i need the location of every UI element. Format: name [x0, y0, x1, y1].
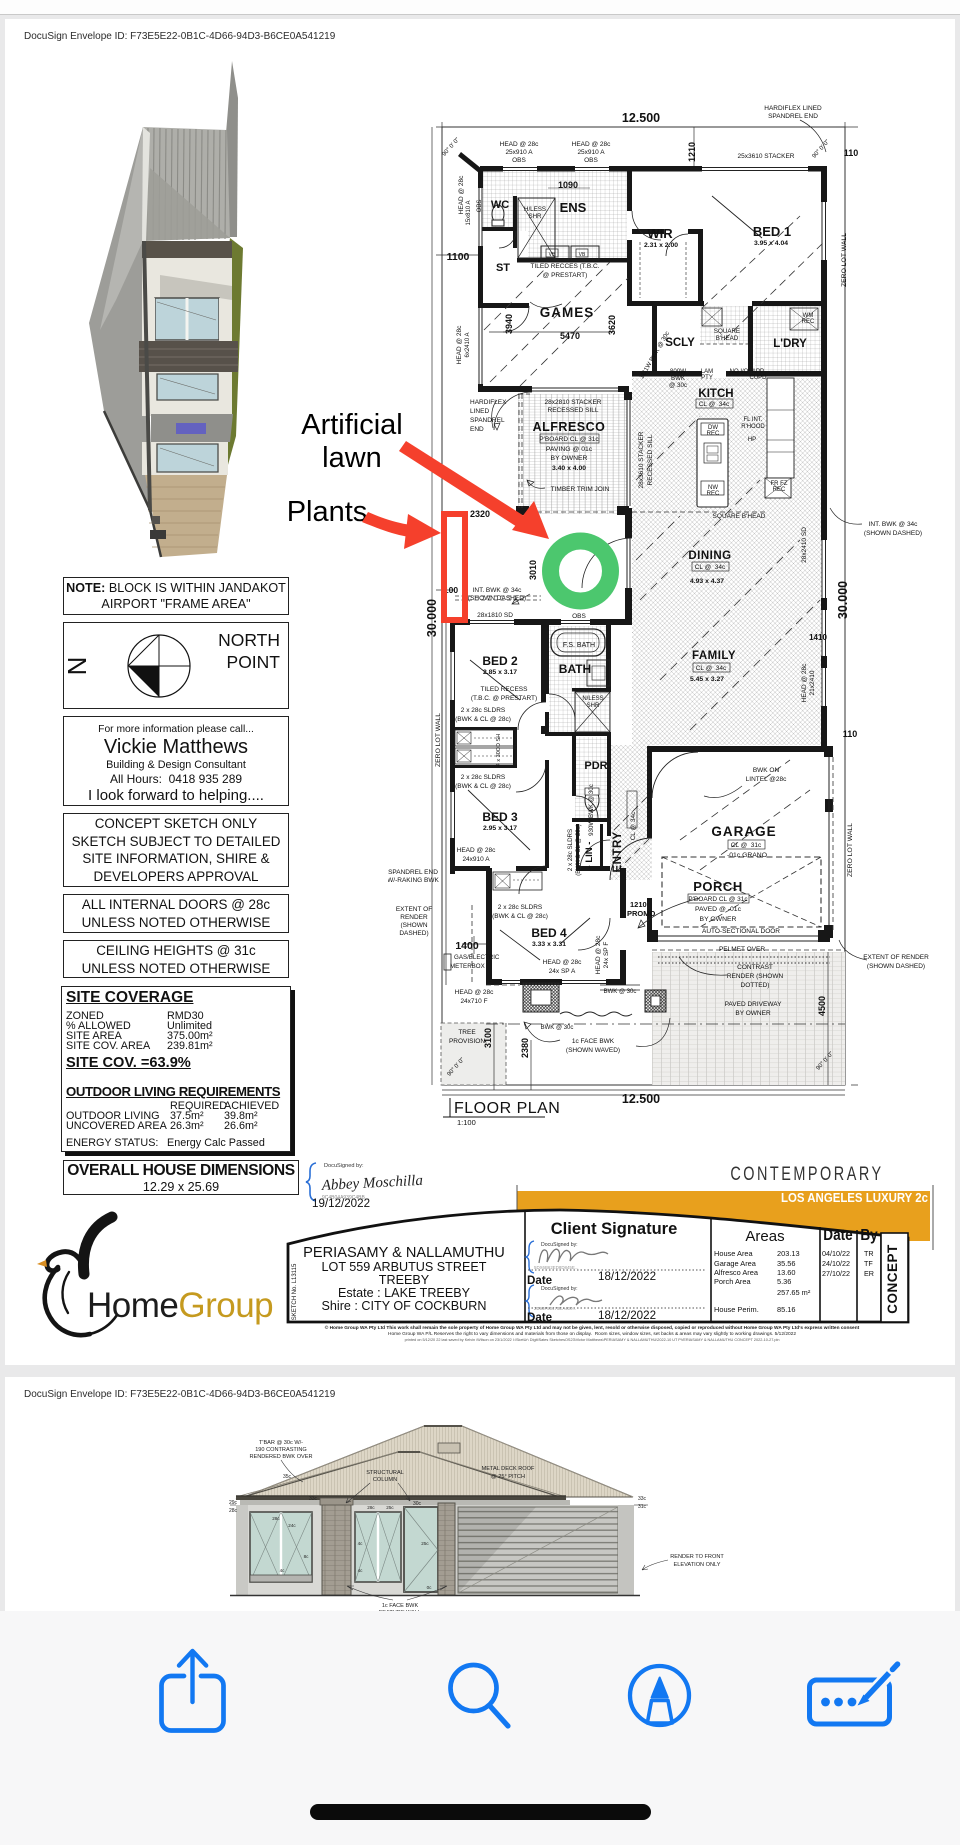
svg-text:SPANDREL END: SPANDREL END	[768, 113, 818, 120]
svg-text:PROMO: PROMO	[627, 909, 656, 918]
svg-text:Garage Area: Garage Area	[714, 1259, 757, 1268]
svg-text:CONTEMPORARY: CONTEMPORARY	[730, 1162, 883, 1185]
svg-text:HomeGroup: HomeGroup	[87, 1286, 273, 1325]
svg-text:Plants: Plants	[287, 496, 368, 528]
svg-text:DocuSigned by:: DocuSigned by:	[324, 1163, 364, 1169]
svg-text:EXTENT OF: EXTENT OF	[396, 906, 432, 913]
svg-text:DINING: DINING	[688, 550, 731, 562]
svg-text:3620: 3620	[607, 315, 617, 335]
svg-text:2380: 2380	[520, 1038, 530, 1058]
svg-text:BED 4: BED 4	[531, 926, 567, 940]
svg-text:Porch Area: Porch Area	[714, 1277, 751, 1286]
svg-text:REC: REC	[773, 487, 786, 493]
svg-text:TF: TF	[864, 1259, 873, 1268]
svg-text:B'HEAD: B'HEAD	[716, 335, 739, 342]
svg-text:BED 1: BED 1	[753, 224, 791, 239]
svg-text:HEAD @ 28c: HEAD @ 28c	[595, 935, 602, 974]
svg-text:WIR: WIR	[647, 226, 673, 241]
svg-text:PAVED @ -01c: PAVED @ -01c	[695, 906, 742, 913]
svg-text:(BWK & CL @ 28c): (BWK & CL @ 28c)	[576, 824, 582, 876]
svg-text:24x SP F: 24x SP F	[603, 942, 610, 969]
svg-text:CL @ 34c: CL @ 34c	[699, 401, 730, 408]
svg-text:HP: HP	[748, 437, 756, 443]
svg-text:24/10/22: 24/10/22	[822, 1259, 850, 1268]
svg-text:SPANDREL END: SPANDREL END	[388, 869, 438, 876]
svg-text:Artificial: Artificial	[301, 409, 403, 441]
svg-text:35.56: 35.56	[777, 1259, 796, 1268]
svg-text:CL @ 34c: CL @ 34c	[630, 811, 637, 841]
svg-text:HEAD @ 28c: HEAD @ 28c	[456, 325, 463, 364]
svg-text:(SHOWN DASHED): (SHOWN DASHED)	[864, 530, 922, 537]
svg-text:HEAD @ 28c: HEAD @ 28c	[500, 141, 539, 148]
svg-text:VB: VB	[549, 252, 556, 258]
svg-text:90° 0' 0": 90° 0' 0"	[812, 139, 831, 160]
svg-text:Alfresco Area: Alfresco Area	[714, 1268, 759, 1277]
svg-text:ENTRY: ENTRY	[612, 831, 624, 872]
svg-text:PAVED DRIVEWAY: PAVED DRIVEWAY	[725, 1001, 782, 1008]
svg-text:CUPD: CUPD	[749, 375, 767, 381]
svg-text:Date: Date	[823, 1227, 852, 1244]
svg-text:R'HOOD: R'HOOD	[741, 424, 765, 430]
svg-text:19/12/2022: 19/12/2022	[312, 1197, 370, 1210]
svg-text:FL INT.: FL INT.	[743, 417, 762, 423]
svg-text:HEAD @ 28c: HEAD @ 28c	[572, 141, 611, 148]
svg-text:HARDIFLEX LINED: HARDIFLEX LINED	[764, 105, 822, 112]
svg-text:(SHOWN DASHED): (SHOWN DASHED)	[867, 963, 925, 970]
svg-text:SHR: SHR	[587, 703, 600, 709]
svg-text:BWK ON: BWK ON	[753, 767, 780, 774]
svg-text:1210: 1210	[687, 142, 697, 162]
svg-text:RENDER (SHOWN: RENDER (SHOWN	[727, 973, 784, 980]
svg-text:P'BOARD CL @ 31c: P'BOARD CL @ 31c	[688, 896, 748, 903]
svg-text:Areas: Areas	[745, 1228, 784, 1245]
svg-text:INT. BWK @ 34c: INT. BWK @ 34c	[869, 521, 919, 528]
svg-text:GAS/ELECTRIC: GAS/ELECTRIC	[454, 954, 500, 961]
svg-text:18/12/2022: 18/12/2022	[598, 1309, 656, 1322]
svg-text:3940: 3940	[504, 314, 514, 334]
svg-text:4 x 30OD SH: 4 x 30OD SH	[496, 734, 502, 766]
svg-text:1c FACE BWK: 1c FACE BWK	[572, 1038, 615, 1045]
svg-text:4c: 4c	[280, 1568, 286, 1573]
svg-text:© Home Group WA Pty Ltd This w: © Home Group WA Pty Ltd This work shall …	[325, 1324, 860, 1331]
svg-text:lawn: lawn	[322, 442, 382, 474]
svg-text:5DX6B62ED8D845E...: 5DX6B62ED8D845E...	[534, 1265, 578, 1270]
svg-text:HEAD @ 28c: HEAD @ 28c	[457, 847, 496, 854]
svg-text:BWK: BWK	[671, 375, 686, 382]
svg-text:CL @ 34c: CL @ 34c	[696, 665, 727, 672]
svg-text:SCLY: SCLY	[665, 337, 695, 349]
svg-text:3.33 x 3.31: 3.33 x 3.31	[532, 941, 566, 948]
svg-text:STRUCTURAL: STRUCTURAL	[366, 1470, 404, 1476]
svg-text:TILED RECCES (T.B.C.: TILED RECCES (T.B.C.	[531, 263, 600, 270]
svg-text:24x910 A: 24x910 A	[462, 856, 490, 863]
svg-text:TR: TR	[864, 1249, 874, 1258]
svg-text:SQUARE B'HEAD: SQUARE B'HEAD	[713, 513, 766, 520]
svg-text:AUTO-SECTIONAL DOOR: AUTO-SECTIONAL DOOR	[702, 928, 780, 935]
svg-text:@ PRESTART): @ PRESTART)	[543, 272, 588, 279]
svg-text:EXTENT OF RENDER: EXTENT OF RENDER	[863, 954, 929, 961]
svg-text:L'DRY: L'DRY	[773, 338, 807, 350]
svg-text:1:100: 1:100	[457, 1118, 476, 1125]
svg-text:N: N	[64, 657, 92, 676]
svg-text:DOTTED): DOTTED)	[741, 982, 770, 989]
svg-text:TREEBY: TREEBY	[379, 1273, 430, 1287]
svg-text:110: 110	[843, 729, 858, 739]
svg-text:DASHED): DASHED)	[399, 930, 428, 937]
svg-text:ENS: ENS	[560, 200, 587, 215]
svg-text:HEAD @ 28c: HEAD @ 28c	[458, 175, 465, 214]
svg-text:18/12/2022: 18/12/2022	[598, 1270, 656, 1283]
svg-text:PELMET OVER: PELMET OVER	[719, 946, 765, 953]
svg-text:30c: 30c	[413, 1501, 422, 1507]
svg-text:8c: 8c	[304, 1554, 310, 1559]
svg-text:5.45 x 3.27: 5.45 x 3.27	[690, 676, 724, 683]
svg-text:W/-RAKING BWK: W/-RAKING BWK	[388, 877, 439, 884]
svg-text:GARAGE: GARAGE	[711, 824, 776, 839]
svg-text:24x SP A: 24x SP A	[549, 968, 576, 975]
svg-text:LOS ANGELES LUXURY 2c: LOS ANGELES LUXURY 2c	[781, 1190, 928, 1205]
svg-text:Client Signature: Client Signature	[551, 1220, 678, 1238]
svg-text:5.36: 5.36	[777, 1277, 791, 1286]
svg-text:CONCEPT: CONCEPT	[885, 1244, 900, 1314]
svg-text:3.95 x 4.04: 3.95 x 4.04	[754, 240, 788, 247]
svg-text:VB: VB	[579, 252, 586, 258]
svg-text:28c: 28c	[229, 1508, 238, 1514]
svg-text:0c: 0c	[427, 1585, 433, 1590]
svg-text:ST: ST	[496, 262, 510, 274]
svg-text:ZERO LOT WALL: ZERO LOT WALL	[847, 823, 854, 877]
svg-text:4c: 4c	[358, 1541, 364, 1546]
svg-text:28c: 28c	[272, 1516, 280, 1521]
svg-text:Date: Date	[527, 1311, 553, 1324]
svg-text:110: 110	[844, 148, 859, 158]
svg-text:House Perim.: House Perim.	[714, 1305, 759, 1314]
svg-text:By: By	[860, 1227, 878, 1244]
svg-text:25x3610 STACKER: 25x3610 STACKER	[738, 153, 795, 160]
svg-text:NO I/O: NO I/O	[730, 369, 749, 375]
svg-text:2.95 x 3.17: 2.95 x 3.17	[483, 825, 517, 832]
svg-text:(BWK & CL @ 28c): (BWK & CL @ 28c)	[455, 716, 511, 723]
svg-text:DocuSigned by:: DocuSigned by:	[541, 1242, 578, 1248]
svg-text:1210: 1210	[630, 900, 647, 909]
svg-text:203.13: 203.13	[777, 1249, 800, 1258]
svg-text:2 x 28c SLDRS: 2 x 28c SLDRS	[567, 829, 574, 871]
svg-text:1400: 1400	[455, 940, 479, 952]
svg-text:(SHOWN WAVED): (SHOWN WAVED)	[566, 1047, 620, 1054]
svg-text:PTY: PTY	[701, 375, 713, 381]
svg-text:13.60: 13.60	[777, 1268, 796, 1277]
svg-text:25c: 25c	[386, 1505, 394, 1510]
svg-text:N/LESS: N/LESS	[582, 696, 603, 702]
svg-text:2 x 28c SLDRS: 2 x 28c SLDRS	[498, 904, 543, 911]
svg-text:PERIASAMY & NALLAMUTHU: PERIASAMY & NALLAMUTHU	[303, 1245, 505, 1261]
svg-text:257.65 m²: 257.65 m²	[777, 1288, 811, 1297]
svg-text:12.500: 12.500	[622, 1092, 660, 1106]
svg-text:PORCH: PORCH	[693, 879, 742, 894]
svg-text:Home Group WA P/L Reserves the: Home Group WA P/L Reserves the right to …	[388, 1331, 796, 1337]
svg-text:21x2410: 21x2410	[809, 670, 816, 695]
svg-text:PROVISION: PROVISION	[449, 1038, 485, 1045]
svg-text:28c: 28c	[367, 1505, 375, 1510]
svg-text:CL @ 34c: CL @ 34c	[695, 564, 726, 571]
svg-text:6x2410 A: 6x2410 A	[465, 332, 471, 357]
svg-text:2 x 28c SLDRS: 2 x 28c SLDRS	[461, 707, 506, 714]
svg-text:CONTRAST: CONTRAST	[737, 964, 773, 971]
svg-text:(T.B.C. @ PRESTART): (T.B.C. @ PRESTART)	[471, 695, 537, 702]
svg-text:TREE: TREE	[458, 1029, 476, 1036]
svg-text:Shire : CITY OF COCKBURN: Shire : CITY OF COCKBURN	[322, 1299, 487, 1313]
svg-text:RENDER TO FRONT: RENDER TO FRONT	[670, 1554, 724, 1560]
svg-text:4c: 4c	[358, 1568, 364, 1573]
svg-text:BY OWNER: BY OWNER	[700, 916, 737, 923]
svg-text:25c: 25c	[421, 1541, 429, 1546]
svg-text:LOT 559 ARBUTUS STREET: LOT 559 ARBUTUS STREET	[322, 1260, 487, 1274]
svg-text:2.85 x 3.17: 2.85 x 3.17	[483, 669, 517, 676]
svg-text:24x710 F: 24x710 F	[460, 998, 487, 1005]
svg-text:(BWK & CL @ 28c): (BWK & CL @ 28c)	[492, 913, 548, 920]
svg-text:BATH: BATH	[559, 662, 591, 676]
svg-text:5470: 5470	[560, 331, 580, 341]
svg-text:FLOOR PLAN: FLOOR PLAN	[454, 1100, 560, 1117]
svg-text:30.000: 30.000	[836, 581, 850, 619]
svg-text:24c: 24c	[288, 1523, 296, 1528]
svg-text:33c: 33c	[638, 1496, 647, 1502]
svg-text:35c: 35c	[283, 1474, 292, 1480]
svg-text:HEAD @ 28c: HEAD @ 28c	[801, 663, 808, 702]
svg-text:2.31 x 2.00: 2.31 x 2.00	[644, 242, 678, 249]
svg-text:METAL DECK ROOF: METAL DECK ROOF	[482, 1466, 535, 1472]
svg-text:90° 0' 0": 90° 0' 0"	[442, 137, 461, 158]
svg-text:printed on 5/12/20 22 last sav: printed on 5/12/20 22 last saved by Kelv…	[405, 1338, 780, 1342]
svg-text:ELEVATION ONLY: ELEVATION ONLY	[674, 1562, 721, 1568]
svg-text:ZERO LOT WALL: ZERO LOT WALL	[435, 713, 442, 767]
svg-text:-01c GRANO: -01c GRANO	[727, 852, 767, 859]
svg-text:OBS: OBS	[512, 157, 526, 164]
svg-text:CL @ 31c: CL @ 31c	[731, 842, 762, 849]
svg-text:BED 3: BED 3	[482, 810, 518, 824]
svg-text:12.500: 12.500	[622, 111, 660, 125]
svg-text:25x910 A: 25x910 A	[577, 149, 605, 156]
svg-text:OBS: OBS	[584, 157, 598, 164]
svg-text:190 CONTRASTING: 190 CONTRASTING	[255, 1447, 307, 1453]
svg-text:DocuSigned by:: DocuSigned by:	[541, 1286, 578, 1292]
svg-text:25x910 A: 25x910 A	[505, 149, 533, 156]
svg-text:RENDER: RENDER	[400, 914, 428, 921]
svg-text:ER: ER	[864, 1269, 874, 1278]
svg-text:(SHOWN: (SHOWN	[400, 922, 427, 929]
svg-text:PDR: PDR	[584, 760, 607, 772]
svg-text:Estate : LAKE TREEBY: Estate : LAKE TREEBY	[338, 1286, 471, 1300]
svg-text:BED 2: BED 2	[482, 654, 518, 668]
svg-text:REC: REC	[707, 431, 720, 437]
svg-text:REC: REC	[707, 491, 720, 497]
svg-text:TILED RECESS: TILED RECESS	[481, 686, 529, 693]
svg-text:RENDERED BWK OVER: RENDERED BWK OVER	[249, 1454, 312, 1460]
svg-text:1c FACE BWK: 1c FACE BWK	[382, 1603, 419, 1609]
svg-text:METERBOX: METERBOX	[450, 963, 485, 970]
svg-text:SHR: SHR	[528, 213, 542, 220]
svg-text:SKETCH No. L13115: SKETCH No. L13115	[292, 1263, 298, 1320]
svg-text:KITCH: KITCH	[698, 388, 733, 400]
svg-text:4.93 x 4.37: 4.93 x 4.37	[690, 578, 724, 585]
svg-text:800W: 800W	[670, 368, 686, 375]
svg-text:HEAD @ 28c: HEAD @ 28c	[543, 959, 582, 966]
svg-text:85.16: 85.16	[777, 1305, 796, 1314]
svg-text:REC: REC	[802, 319, 815, 325]
svg-text:930W BWK @ 30c: 930W BWK @ 30c	[588, 784, 595, 836]
svg-text:- LIN -: - LIN -	[584, 842, 595, 869]
svg-text:27/10/22: 27/10/22	[822, 1269, 850, 1278]
svg-text:T'BAR @ 30c W/-: T'BAR @ 30c W/-	[259, 1440, 303, 1446]
svg-text:WC: WC	[491, 199, 509, 211]
svg-text:@ 25° PITCH: @ 25° PITCH	[491, 1474, 525, 1480]
svg-text:House Area: House Area	[714, 1249, 754, 1258]
svg-text:15x810 A: 15x810 A	[466, 200, 472, 225]
svg-text:Abbey Moschilla: Abbey Moschilla	[320, 1173, 423, 1194]
svg-text:@ 30c: @ 30c	[669, 382, 687, 389]
svg-text:BWK @ 30c: BWK @ 30c	[604, 989, 637, 995]
svg-text:04/10/22: 04/10/22	[822, 1249, 850, 1258]
svg-text:H/LESS: H/LESS	[524, 206, 546, 213]
svg-text:1090: 1090	[558, 180, 578, 190]
svg-text:BY OWNER: BY OWNER	[735, 1010, 771, 1017]
svg-text:FAMILY: FAMILY	[692, 650, 736, 662]
svg-text:BWK @ 30c: BWK @ 30c	[541, 1025, 574, 1031]
svg-text:33c: 33c	[309, 1496, 318, 1502]
svg-text:2 x 28c SLDRS: 2 x 28c SLDRS	[461, 774, 506, 781]
svg-text:4500: 4500	[817, 996, 827, 1016]
svg-text:COLUMN: COLUMN	[373, 1477, 397, 1483]
svg-text:LINTEL @28c: LINTEL @28c	[746, 776, 787, 783]
svg-text:1410: 1410	[809, 633, 827, 642]
svg-text:HEAD @ 28c: HEAD @ 28c	[455, 989, 494, 996]
svg-text:1100: 1100	[447, 251, 470, 263]
svg-text:28x2410 SD: 28x2410 SD	[801, 527, 808, 563]
svg-text:(BWK & CL @ 28c): (BWK & CL @ 28c)	[455, 783, 511, 790]
svg-text:OBS: OBS	[477, 200, 483, 213]
svg-text:SQUARE: SQUARE	[714, 328, 740, 335]
svg-text:ZERO LOT WALL: ZERO LOT WALL	[841, 233, 848, 287]
